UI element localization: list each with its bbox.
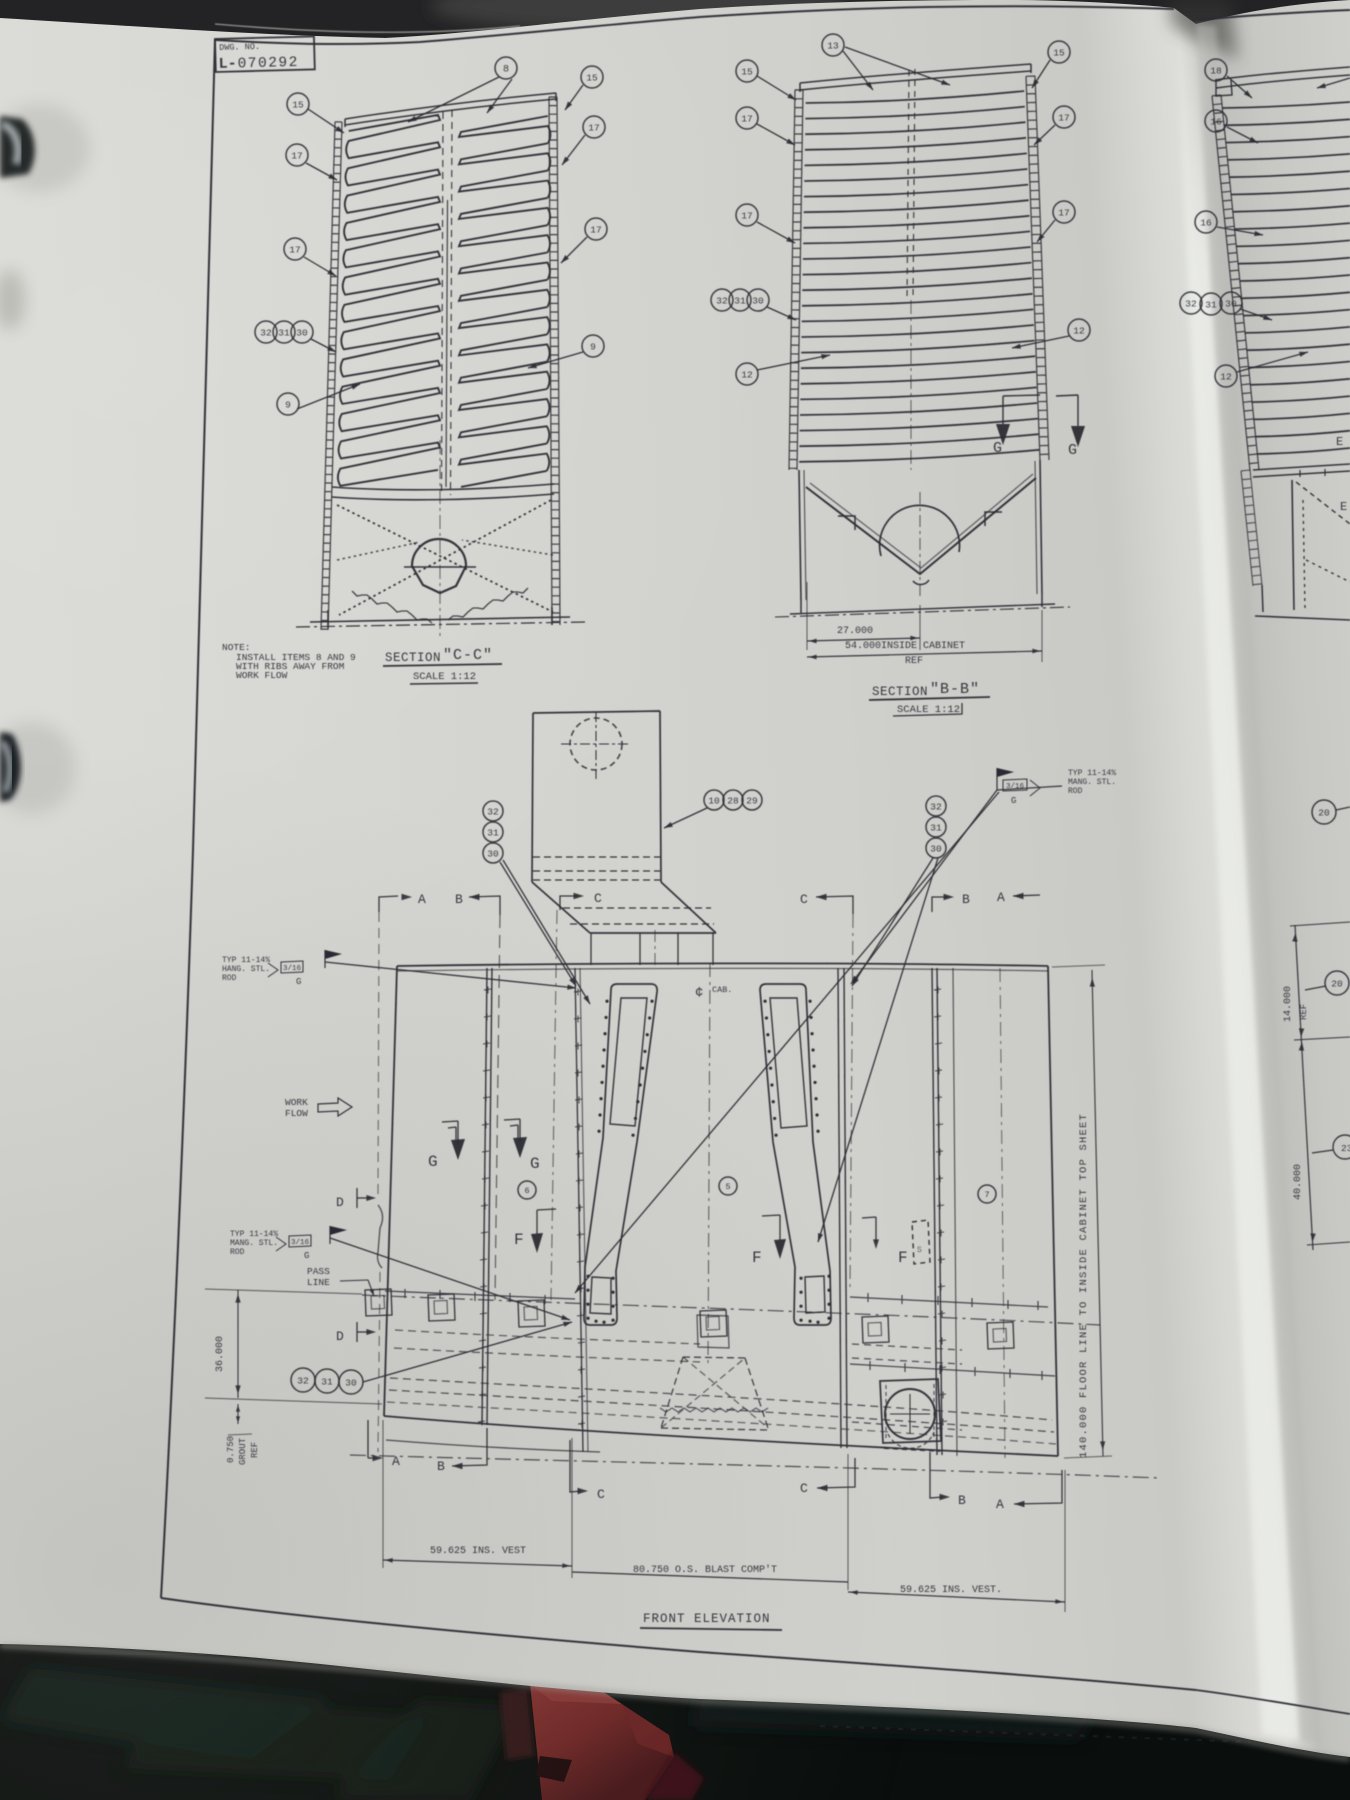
svg-text:32: 32 <box>297 1375 309 1386</box>
svg-text:32: 32 <box>487 806 499 817</box>
svg-text:A: A <box>392 1454 400 1469</box>
svg-text:C: C <box>800 1481 808 1496</box>
svg-text:6: 6 <box>524 1186 529 1196</box>
svg-text:C: C <box>800 892 808 907</box>
svg-text:3/16: 3/16 <box>291 1239 310 1247</box>
svg-text:27.000: 27.000 <box>837 626 873 637</box>
svg-text:8: 8 <box>503 65 509 76</box>
svg-text:31: 31 <box>278 327 290 338</box>
svg-text:20: 20 <box>1331 978 1343 989</box>
svg-text:17: 17 <box>291 150 302 161</box>
svg-text:31: 31 <box>1205 299 1217 310</box>
svg-text:17: 17 <box>741 113 752 124</box>
svg-text:12: 12 <box>1073 325 1085 336</box>
svg-text:0.750: 0.750 <box>226 1436 236 1463</box>
svg-text:CAB.: CAB. <box>712 985 732 995</box>
svg-text:SECTION: SECTION <box>872 685 928 699</box>
svg-text:F: F <box>752 1249 762 1267</box>
svg-text:5: 5 <box>725 1182 730 1192</box>
svg-text:17: 17 <box>741 210 752 221</box>
svg-text:E: E <box>1340 500 1347 514</box>
svg-text:59.625 INS. VEST.: 59.625 INS. VEST. <box>900 1585 1002 1596</box>
svg-text:31: 31 <box>321 1376 333 1387</box>
svg-text:30: 30 <box>752 295 764 306</box>
svg-text:A: A <box>418 892 426 907</box>
svg-text:S: S <box>917 1246 922 1255</box>
svg-text:SECTION: SECTION <box>385 651 441 665</box>
svg-text:7: 7 <box>984 1190 989 1200</box>
svg-text:29: 29 <box>746 795 758 806</box>
svg-text:23: 23 <box>1341 1143 1350 1154</box>
svg-text:15: 15 <box>1053 47 1065 58</box>
svg-text:FRONT ELEVATION: FRONT ELEVATION <box>643 1612 771 1626</box>
svg-text:32: 32 <box>260 327 272 338</box>
svg-text:TYP 11-14%: TYP 11-14% <box>222 956 270 965</box>
svg-text:¢: ¢ <box>695 985 703 1001</box>
svg-text:G: G <box>1011 796 1016 806</box>
svg-text:12: 12 <box>1220 371 1232 382</box>
svg-text:MANG. STL.: MANG. STL. <box>1068 778 1116 787</box>
svg-text:"B-B": "B-B" <box>930 681 980 698</box>
svg-text:36.000: 36.000 <box>215 1336 226 1372</box>
svg-text:REF: REF <box>250 1442 260 1458</box>
svg-text:G: G <box>530 1155 540 1173</box>
svg-text:D: D <box>336 1329 344 1344</box>
svg-text:32: 32 <box>930 801 942 812</box>
svg-text:SCALE 1:12: SCALE 1:12 <box>413 671 476 683</box>
svg-text:16: 16 <box>1210 116 1222 127</box>
svg-text:WORK FLOW: WORK FLOW <box>236 670 288 681</box>
svg-text:30: 30 <box>345 1377 357 1388</box>
svg-text:070292: 070292 <box>237 55 299 73</box>
svg-text:10: 10 <box>708 795 720 806</box>
svg-text:WORK: WORK <box>285 1097 308 1108</box>
svg-text:TYP 11-14%: TYP 11-14% <box>230 1230 278 1239</box>
svg-text:D: D <box>336 1195 344 1210</box>
svg-text:15: 15 <box>292 99 304 110</box>
svg-text:17: 17 <box>1058 207 1069 218</box>
svg-text:F: F <box>514 1231 524 1249</box>
svg-text:DWG. NO.: DWG. NO. <box>219 42 260 53</box>
svg-text:MANG. STL.: MANG. STL. <box>230 1239 278 1248</box>
svg-text:31: 31 <box>734 295 746 306</box>
svg-text:ROD: ROD <box>222 974 237 983</box>
svg-text:18: 18 <box>1210 65 1222 76</box>
svg-text:16: 16 <box>1200 217 1212 228</box>
svg-text:B: B <box>437 1459 445 1474</box>
svg-text:14.000: 14.000 <box>1283 986 1294 1022</box>
svg-text:B: B <box>958 1493 966 1508</box>
svg-text:12: 12 <box>741 369 753 380</box>
svg-text:PASS: PASS <box>307 1266 330 1277</box>
svg-text:32: 32 <box>1185 298 1197 309</box>
svg-text:17: 17 <box>588 122 599 133</box>
svg-text:G: G <box>296 977 301 987</box>
svg-text:13: 13 <box>827 40 839 51</box>
svg-text:REF: REF <box>1299 1004 1309 1020</box>
svg-text:31: 31 <box>487 827 499 838</box>
svg-text:30: 30 <box>487 848 499 859</box>
svg-text:28: 28 <box>727 795 739 806</box>
svg-text:GROUT: GROUT <box>238 1437 248 1465</box>
svg-text:80.750 O.S. BLAST COMP'T: 80.750 O.S. BLAST COMP'T <box>633 1564 777 1576</box>
svg-text:17: 17 <box>590 224 601 235</box>
svg-text:G: G <box>993 440 1002 457</box>
svg-text:REF: REF <box>905 656 923 667</box>
svg-text:G: G <box>1068 442 1077 459</box>
svg-text:17: 17 <box>1058 112 1069 123</box>
svg-text:HANG. STL.: HANG. STL. <box>222 965 270 974</box>
svg-text:"C-C": "C-C" <box>443 647 493 664</box>
svg-text:ROD: ROD <box>1068 787 1083 796</box>
svg-text:30: 30 <box>1225 298 1237 309</box>
svg-text:3/16: 3/16 <box>1006 783 1025 791</box>
svg-text:54.000INSIDE CABINET: 54.000INSIDE CABINET <box>845 641 965 652</box>
svg-text:30: 30 <box>930 843 942 854</box>
svg-text:G: G <box>428 1153 438 1171</box>
svg-text:E: E <box>1336 435 1343 449</box>
svg-text:32: 32 <box>716 295 728 306</box>
svg-text:15: 15 <box>741 66 753 77</box>
svg-text:F: F <box>898 1249 908 1267</box>
svg-text:A: A <box>996 1497 1004 1512</box>
svg-text:TYP 11-14%: TYP 11-14% <box>1068 769 1116 778</box>
svg-text:59.625 INS. VEST: 59.625 INS. VEST <box>430 1546 526 1557</box>
svg-text:B: B <box>962 892 970 907</box>
svg-text:L-: L- <box>218 55 236 72</box>
svg-text:17: 17 <box>289 244 300 255</box>
svg-text:9: 9 <box>590 341 596 352</box>
svg-text:A: A <box>997 890 1005 905</box>
svg-text:20: 20 <box>1318 807 1330 818</box>
svg-text:30: 30 <box>296 327 308 338</box>
svg-text:LINE: LINE <box>307 1277 330 1288</box>
svg-text:B: B <box>455 892 463 907</box>
svg-text:G: G <box>304 1251 309 1261</box>
svg-text:9: 9 <box>285 399 291 410</box>
svg-text:FLOW: FLOW <box>285 1108 308 1119</box>
svg-text:C: C <box>594 891 602 906</box>
svg-text:40.000: 40.000 <box>1293 1164 1304 1200</box>
svg-text:ROD: ROD <box>230 1248 245 1257</box>
svg-text:C: C <box>597 1487 605 1502</box>
svg-text:31: 31 <box>930 822 942 833</box>
svg-text:15: 15 <box>586 72 598 83</box>
svg-text:140.000 FLOOR LINE TO INSIDE C: 140.000 FLOOR LINE TO INSIDE CABINET TOP… <box>1078 1113 1090 1458</box>
svg-text:3/16: 3/16 <box>283 965 302 973</box>
